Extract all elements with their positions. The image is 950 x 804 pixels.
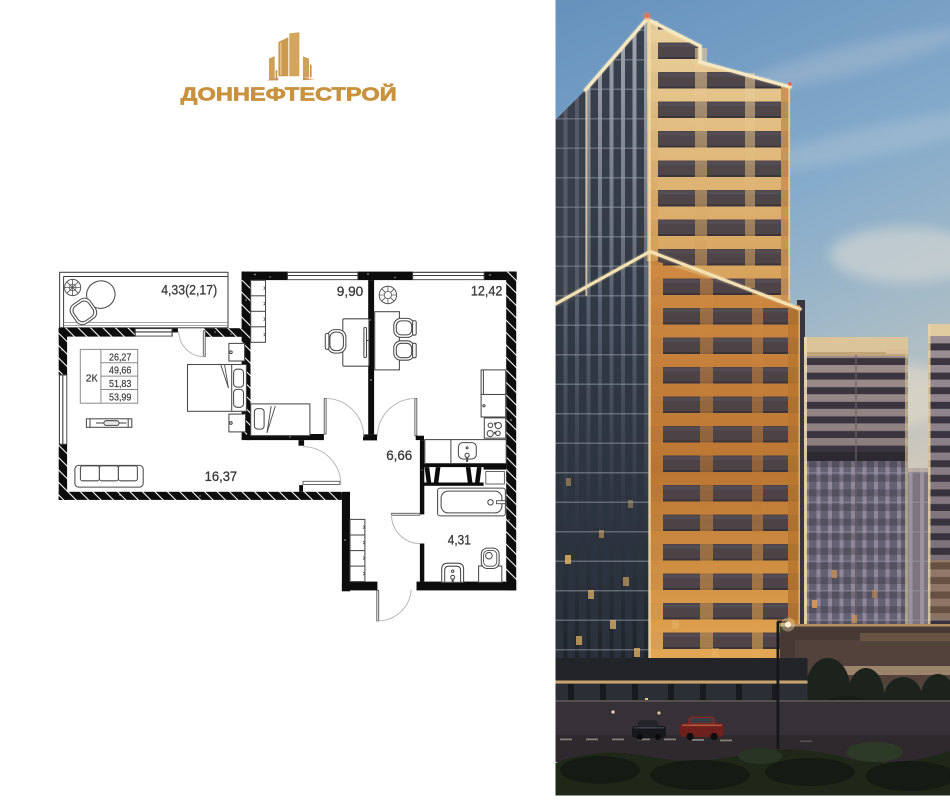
svg-text:26,27: 26,27	[109, 352, 131, 363]
svg-text:ДОННЕФТЕСТРОЙ: ДОННЕФТЕСТРОЙ	[181, 84, 397, 105]
svg-text:12,42: 12,42	[471, 283, 503, 298]
svg-text:9,90: 9,90	[337, 284, 364, 299]
svg-text:4,31: 4,31	[448, 533, 471, 548]
svg-text:53,99: 53,99	[109, 393, 131, 404]
svg-text:51,83: 51,83	[109, 379, 132, 390]
svg-text:2К: 2К	[86, 374, 98, 385]
svg-text:6,66: 6,66	[386, 448, 412, 463]
svg-text:49,66: 49,66	[109, 366, 132, 377]
svg-text:16,37: 16,37	[205, 469, 238, 484]
svg-text:4,33(2,17): 4,33(2,17)	[161, 283, 217, 298]
